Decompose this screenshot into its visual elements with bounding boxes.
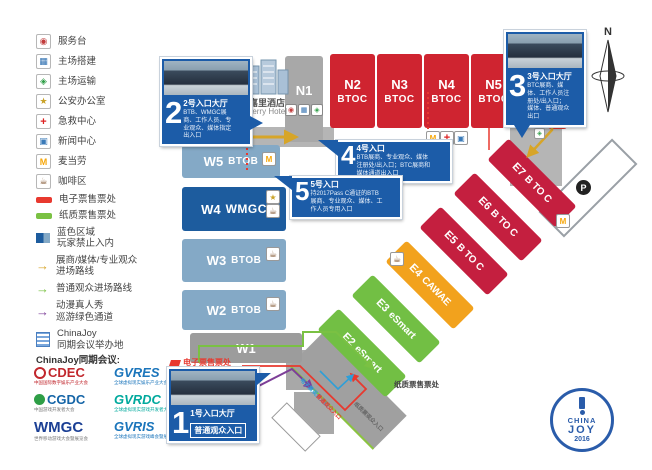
legend-item-conference-venue: ChinaJoy同期会议举办地 <box>36 328 137 351</box>
entrance-1-photo <box>171 371 255 405</box>
hall-type: B TO C <box>488 207 520 239</box>
hall-label: E6 <box>476 195 494 213</box>
legend-label: 普通观众进场路线 <box>56 283 132 294</box>
entrance-3-callout: 3 3号入口大厅 BTC展商、媒体、工作人员注册处/出入口；媒体、普通观众出口 <box>504 30 586 127</box>
legend-item-first-aid: 急救中心 <box>36 114 137 129</box>
logo-cgdc: CGDC中国游戏开发者大会 <box>34 393 110 413</box>
cgdc-icon <box>34 394 45 405</box>
hall-type: BTOC <box>384 94 414 105</box>
compass: N <box>590 26 626 114</box>
hall-label: E4 <box>407 262 425 280</box>
exclamation-icon <box>579 397 585 409</box>
logo-cdec: CDEC中国国际数字娱乐产业大会 <box>34 366 110 386</box>
cdec-icon <box>34 367 46 379</box>
hall-n3: N3BTOC <box>377 54 422 128</box>
hall-label: W3 <box>207 253 227 268</box>
entrance-desc: BTC展商、媒体、工作人员注册处/出入口；媒体、普通观众出口 <box>527 83 569 122</box>
hall-type: BTOC <box>431 94 461 105</box>
entrance-title: 3号入口大厅 <box>527 71 571 82</box>
coffee-area-icon <box>266 204 280 218</box>
legend-label: 公安办公室 <box>58 96 106 107</box>
parking-icon: P <box>576 180 591 195</box>
hall-label: E2 <box>340 331 358 349</box>
hall-label: W4 <box>201 202 221 217</box>
entrance-3-photo <box>508 34 582 68</box>
hall-type: BTOB <box>231 305 261 316</box>
venue-setup-icon <box>36 54 51 69</box>
legend-label: 急救中心 <box>58 116 96 127</box>
entrance-5-callout: 5 5号入口 持2017Pass C通证的BTB展商、专业观众、媒体、工作人员专… <box>290 176 402 219</box>
legend-label: 新闻中心 <box>58 136 96 147</box>
legend: 服务台 主场搭建 主场运输 公安办公室 急救中心 新闻中心 麦当劳 咖啡区 电子… <box>36 34 137 351</box>
entrance-number: 3 <box>509 71 524 100</box>
legend-label: 主场搭建 <box>58 56 96 67</box>
hall-type: CAWAE <box>419 274 453 308</box>
venue-transport-icon <box>36 74 51 89</box>
callout-pointer <box>274 176 292 190</box>
service-desk-icon <box>36 34 51 49</box>
entrance-desc: BTB、WMGC展商、工作人员、专业观众、媒体指定出入口 <box>183 110 231 141</box>
entrance-badge: 普通观众入口 <box>190 423 246 438</box>
hall-label: N2 <box>344 77 361 92</box>
venue-transport-icon <box>534 128 545 139</box>
mcdonalds-icon <box>556 214 570 228</box>
hall-type: BTOB <box>231 255 261 266</box>
legend-item-mcdonalds: 麦当劳 <box>36 154 137 169</box>
entrance-title: 1号入口大厅 <box>190 408 246 419</box>
gold-arrow-icon: → <box>36 259 49 272</box>
coffee-area-icon <box>36 174 51 189</box>
venue-transport-icon <box>311 104 323 116</box>
news-center-icon <box>454 131 468 145</box>
entrance-title: 2号入口大厅 <box>183 98 231 109</box>
purple-arrow-icon: → <box>36 305 49 318</box>
hall-label: E3 <box>374 297 392 315</box>
callout-pointer <box>250 116 263 130</box>
legend-item-venue-transport: 主场运输 <box>36 74 137 89</box>
hall-type: B TO C <box>522 173 554 205</box>
legend-item-cosplay-route: →动漫真人秀巡游绿色通道 <box>36 300 137 323</box>
police-office-icon <box>36 94 51 109</box>
legend-label: 动漫真人秀巡游绿色通道 <box>56 300 113 323</box>
logo-wmgc: WMGC世界移动游戏大会暨展览会 <box>34 420 110 442</box>
hall-label: N5 <box>485 77 502 92</box>
entrance-1-callout: 1 1号入口大厅 普通观众入口 <box>167 367 259 443</box>
coffee-area-icon <box>266 247 280 261</box>
green-arrow-icon: → <box>36 282 49 295</box>
legend-label: 服务台 <box>58 36 87 47</box>
entrance-number: 2 <box>165 98 180 127</box>
legend-item-news-center: 新闻中心 <box>36 134 137 149</box>
legend-item-coffee-area: 咖啡区 <box>36 174 137 189</box>
entrance-desc: 持2017Pass C通证的BTB展商、专业观众、媒体、工作人员专用入口 <box>310 191 382 214</box>
mcdonalds-icon <box>36 154 51 169</box>
paper-ticket-bar-icon <box>36 213 52 219</box>
legend-label: 麦当劳 <box>58 156 87 167</box>
first-aid-icon <box>36 114 51 129</box>
callout-pointer <box>318 140 338 156</box>
eticket-bar-icon <box>169 360 181 366</box>
conference-heading: ChinaJoy同期会议: <box>36 352 120 366</box>
hall-label: E5 <box>442 229 460 247</box>
police-office-icon <box>266 190 280 204</box>
eticket-bar-icon <box>36 197 52 203</box>
hall-type: BTOC <box>337 94 367 105</box>
chinajoy-2016-logo: CHINA JOY 2016 <box>550 388 614 452</box>
hall-n4: N4BTOC <box>424 54 469 128</box>
entrance-number: 5 <box>295 179 307 204</box>
hall-type: eSmart <box>386 309 418 341</box>
venue-map: 服务台 主场搭建 主场运输 公安办公室 急救中心 新闻中心 麦当劳 咖啡区 电子… <box>0 0 652 470</box>
legend-label: ChinaJoy同期会议举办地 <box>57 328 124 351</box>
entrance-2-photo <box>164 61 248 95</box>
legend-label: 展商/媒体/专业观众进场路线 <box>56 255 137 278</box>
legend-item-eticket-office: 电子票售票处 <box>36 194 137 205</box>
legend-label: 电子票售票处 <box>59 194 116 205</box>
legend-label: 纸质票售票处 <box>59 210 116 221</box>
compass-needle-icon <box>590 38 626 114</box>
mcdonalds-icon <box>262 152 276 166</box>
hall-label: E7 <box>510 161 528 179</box>
hall-label: W5 <box>204 154 224 169</box>
coffee-area-icon <box>266 297 280 311</box>
hall-label: N3 <box>391 77 408 92</box>
logo-joy-text: JOY <box>568 425 596 436</box>
hall-n2: N2BTOC <box>330 54 375 128</box>
legend-label: 咖啡区 <box>58 176 87 187</box>
legend-item-exhibitor-route: →展商/媒体/专业观众进场路线 <box>36 255 137 278</box>
legend-item-blue-zone: 蓝色区域玩家禁止入内 <box>36 227 137 250</box>
entrance-desc: BTB展商、专业观众、媒体注册处/出入口；BTC展商和媒体通道出入口 <box>356 155 432 178</box>
legend-item-paper-ticket-office: 纸质票售票处 <box>36 210 137 221</box>
hall-type: B TO C <box>454 241 486 273</box>
coffee-area-icon <box>390 252 404 266</box>
compass-n-label: N <box>590 26 626 38</box>
paper-ticket-office-label: 纸质票售票处 <box>394 379 439 390</box>
hall-label: W1 <box>236 341 256 356</box>
entrance-2-callout: 2 2号入口大厅 BTB、WMGC展商、工作人员、专业观众、媒体指定出入口 <box>160 57 252 146</box>
legend-item-police-office: 公安办公室 <box>36 94 137 109</box>
legend-item-venue-setup: 主场搭建 <box>36 54 137 69</box>
legend-item-general-route: →普通观众进场路线 <box>36 282 137 295</box>
hall-type: BTOB <box>228 156 258 167</box>
legend-item-service-desk: 服务台 <box>36 34 137 49</box>
hall-label: N4 <box>438 77 455 92</box>
entrance-number: 4 <box>341 143 353 168</box>
legend-label: 主场运输 <box>58 76 96 87</box>
entrance-title: 5号入口 <box>310 179 382 190</box>
legend-label: 蓝色区域玩家禁止入内 <box>57 227 114 250</box>
chinajoy-venue-icon <box>36 332 50 347</box>
blue-zone-icon <box>36 233 50 243</box>
entrance-number: 1 <box>172 408 187 437</box>
callout-pointer <box>514 125 530 138</box>
exclamation-dot-icon <box>580 410 585 415</box>
hall-label: W2 <box>207 303 227 318</box>
news-center-icon <box>36 134 51 149</box>
logo-year-text: 2016 <box>574 436 590 443</box>
hall-type: WMGC <box>226 202 267 216</box>
entrance-title: 4号入口 <box>356 143 432 154</box>
callout-pointer <box>257 373 271 385</box>
